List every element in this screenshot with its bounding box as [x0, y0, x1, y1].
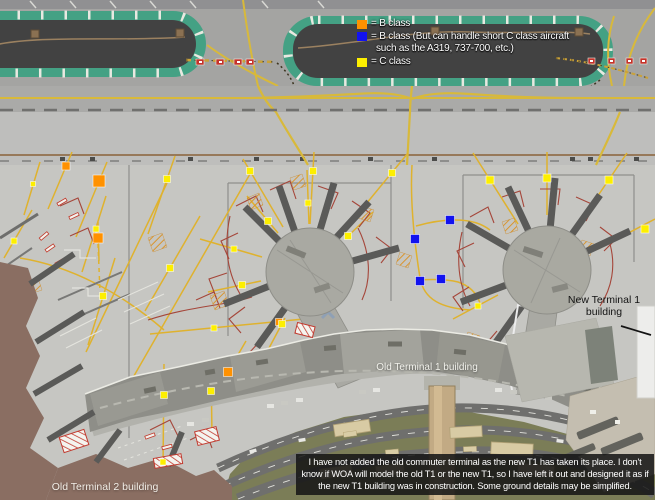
gate-marker-C — [100, 293, 107, 300]
gate-marker-C — [161, 392, 168, 399]
gate-marker-C — [211, 325, 217, 331]
gate-marker-C — [239, 282, 246, 289]
map-label-old-terminal-2: Old Terminal 2 building — [40, 481, 170, 493]
legend-label: = C class — [371, 56, 411, 69]
legend-label: such as the A319, 737-700, etc.) — [376, 43, 514, 56]
gate-marker-C — [167, 265, 174, 272]
map-label-new-terminal-1: New Terminal 1 building — [552, 294, 655, 318]
airport-diagram-screenshot: = B class = B class (But can handle shor… — [0, 0, 655, 500]
gate-marker-C — [93, 226, 99, 232]
legend-item-b-class: = B class — [357, 18, 569, 31]
gate-marker-BC — [437, 275, 446, 284]
legend-item-c-class: = C class — [357, 56, 569, 69]
gate-marker-C — [164, 176, 171, 183]
gate-marker-C — [31, 182, 36, 187]
b-short-c-class-swatch — [357, 32, 367, 41]
gate-marker-C — [486, 176, 494, 184]
gate-marker-C — [389, 170, 396, 177]
gate-marker-B — [224, 368, 233, 377]
gate-marker-C — [345, 233, 352, 240]
new-terminal-1-footprint — [637, 306, 655, 398]
map-label-old-terminal-1: Old Terminal 1 building — [362, 362, 492, 373]
gate-marker-C — [605, 176, 613, 184]
gate-marker-C — [11, 238, 17, 244]
gate-marker-C — [641, 225, 649, 233]
parallel-taxiway — [0, 86, 655, 165]
gate-marker-C — [265, 218, 272, 225]
gate-marker-B — [93, 175, 105, 187]
gate-marker-B — [93, 233, 103, 243]
c-class-swatch — [357, 58, 367, 67]
legend-label: = B class — [371, 18, 410, 31]
b-class-swatch — [357, 20, 367, 29]
gate-marker-C — [310, 168, 317, 175]
gate-marker-C — [475, 303, 481, 309]
gate-marker-BC — [411, 235, 420, 244]
gate-marker-C — [247, 168, 254, 175]
legend-item-b-short-c-class-cont: such as the A319, 737-700, etc.) — [376, 43, 569, 56]
gate-marker-C — [279, 321, 286, 328]
gate-marker-C — [305, 200, 311, 206]
gate-marker-C — [543, 174, 551, 182]
note-box: I have not added the old commuter termin… — [296, 454, 654, 495]
gate-marker-BC — [446, 216, 455, 225]
airport-map-graphic — [0, 0, 655, 500]
gate-marker-C — [160, 459, 166, 465]
gate-marker-C — [208, 388, 215, 395]
gate-marker-B — [62, 162, 70, 170]
legend: = B class = B class (But can handle shor… — [357, 18, 569, 68]
gate-marker-BC — [416, 277, 425, 286]
legend-label: = B class (But can handle short C class … — [371, 31, 569, 44]
legend-item-b-short-c-class: = B class (But can handle short C class … — [357, 31, 569, 44]
gate-marker-C — [231, 246, 237, 252]
